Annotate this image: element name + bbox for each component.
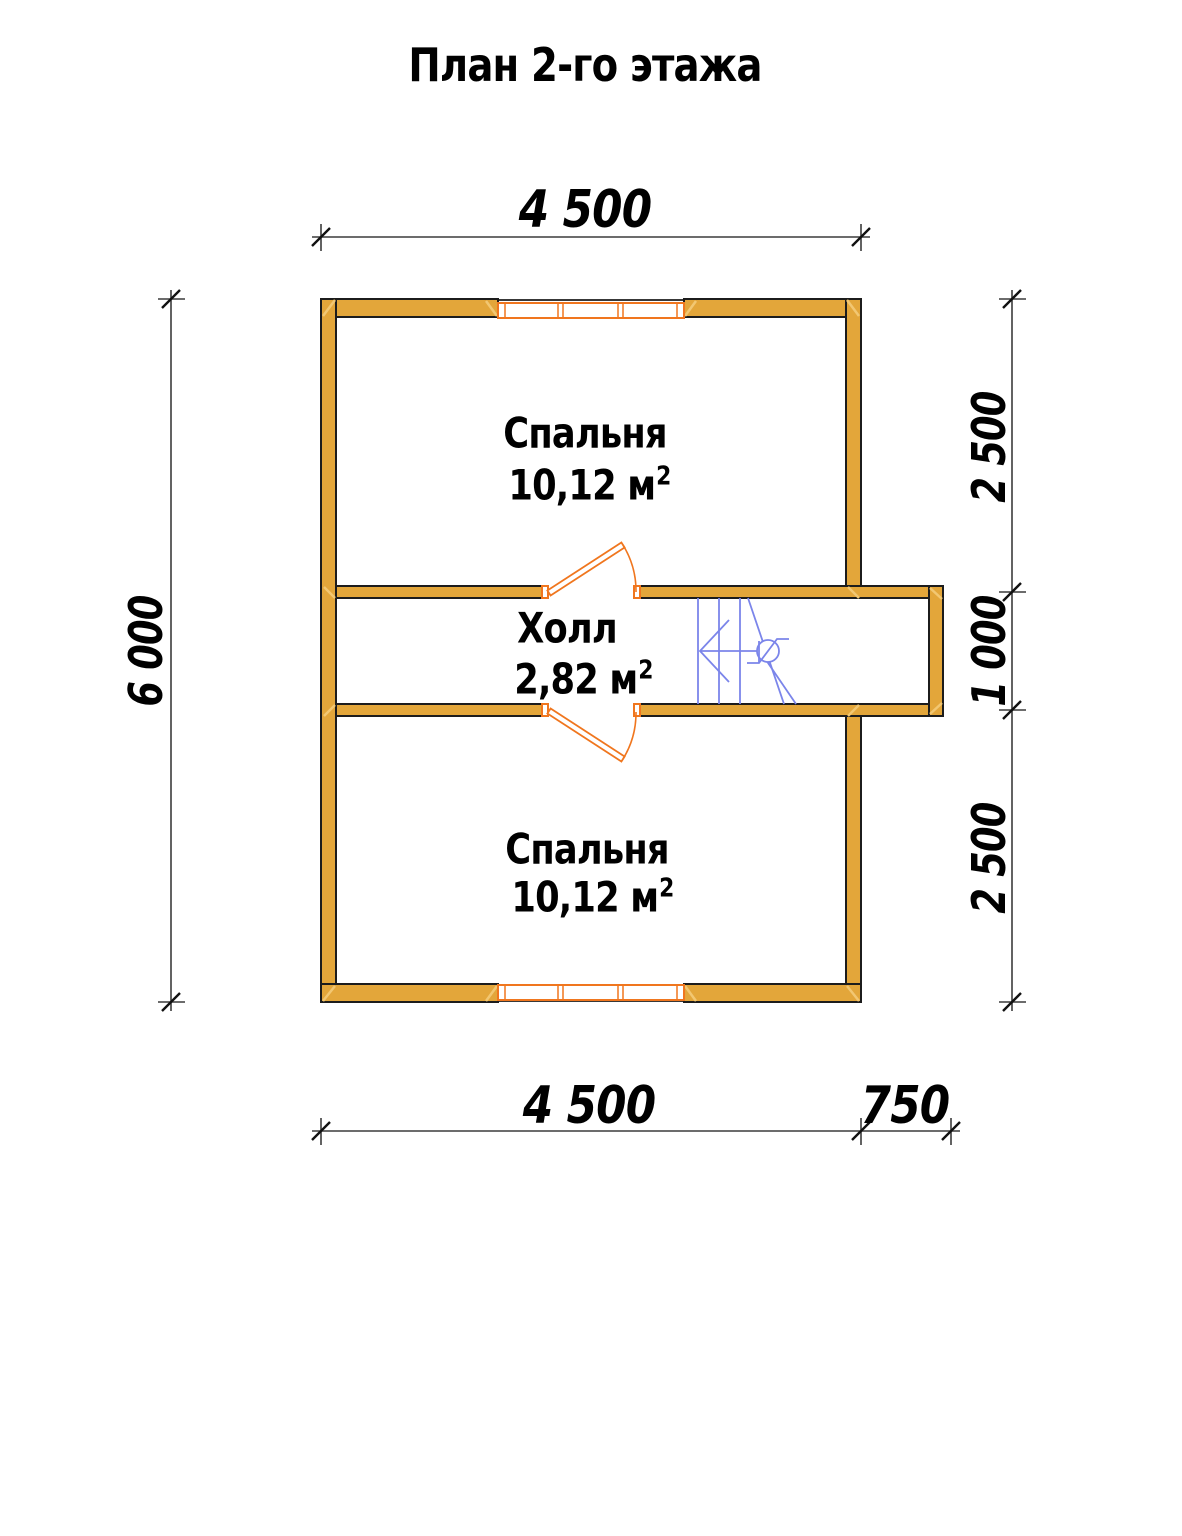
page-title: План 2-го этажа <box>408 38 761 92</box>
room-area-bedroom-top: 10,12 м2 <box>508 461 669 510</box>
room-area-bedroom-bottom: 10,12 м2 <box>511 873 672 922</box>
room-label-bedroom-top: Спальня <box>503 409 666 458</box>
dimension-label-right-top: 2 500 <box>962 391 1016 502</box>
room-area-superscript: 2 <box>659 874 673 904</box>
door-bottom-bedroom <box>542 704 640 762</box>
dimension-label-top-width: 4 500 <box>519 180 652 240</box>
door-top-bedroom <box>542 543 640 599</box>
window-bottom <box>498 985 684 1000</box>
room-area-superscript: 2 <box>656 462 670 492</box>
room-area-value: 10,12 м <box>508 461 655 510</box>
dimension-label-bottom-width: 4 500 <box>523 1076 656 1136</box>
room-area-hall: 2,82 м2 <box>514 655 652 704</box>
staircase <box>698 598 796 704</box>
room-label-hall: Холл <box>517 604 617 653</box>
room-label-bedroom-bottom: Спальня <box>505 825 668 874</box>
window-top <box>498 303 684 318</box>
room-area-value: 10,12 м <box>511 873 658 922</box>
floor-plan-page: План 2-го этажа 4 500 Спальня 10,12 м2 Х… <box>0 0 1182 1536</box>
dimension-label-left-height: 6 000 <box>119 595 173 706</box>
dimension-label-right-bottom: 2 500 <box>962 802 1016 913</box>
dimension-label-bottom-extension: 750 <box>861 1076 950 1136</box>
stair-direction-arrow <box>700 620 760 682</box>
dimension-label-right-middle: 1 000 <box>962 595 1016 706</box>
room-area-value: 2,82 м <box>514 655 637 704</box>
room-area-superscript: 2 <box>638 656 652 686</box>
